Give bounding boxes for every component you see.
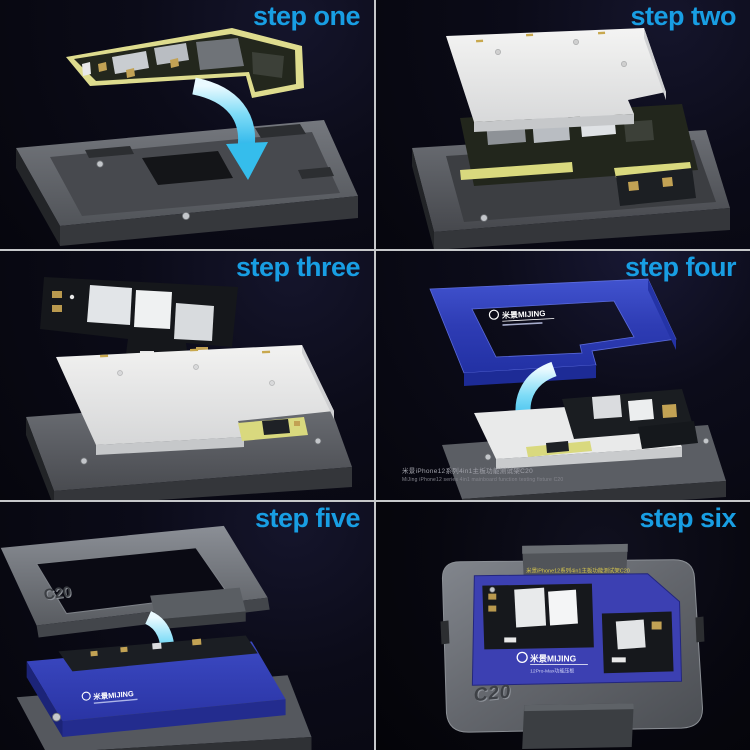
fixture-caption: 米景iPhone12系列4in1主板功能测试架C20 MiJing iPhone… <box>402 468 563 484</box>
step-label: step five <box>255 503 360 534</box>
body-marking: C20 <box>473 681 513 706</box>
screw-icon <box>703 438 709 444</box>
step-guide-grid: step one <box>0 0 750 750</box>
screw-icon <box>485 454 491 460</box>
screw-icon <box>53 713 61 721</box>
illustration-step-four: 米景MIJING <box>376 251 750 500</box>
illustration-step-three <box>0 251 374 500</box>
assembled-device: 米景iPhone12系列4in1主板功能测试架C20 <box>440 544 704 749</box>
step-label: step six <box>639 503 736 534</box>
panel-step-two: step two <box>376 0 750 249</box>
step-label: step three <box>236 252 360 283</box>
illustration-step-two <box>376 0 750 249</box>
side-latch <box>695 617 704 643</box>
step-label: step four <box>625 252 736 283</box>
metal-clamp-frame: C20 C20 <box>1 526 270 638</box>
illustration-step-five: C20 C20 米景MIJING <box>0 502 374 750</box>
frame-brand-text: 米景MIJING <box>501 308 546 320</box>
illustration-step-six: 米景iPhone12系列4in1主板功能测试架C20 <box>376 502 750 750</box>
panel-step-three: step three <box>0 251 374 500</box>
upper-logic-board <box>482 584 594 650</box>
plate-top-text: 米景iPhone12系列4in1主板功能测试架C20 <box>526 567 630 575</box>
caption-line-2: MiJing iPhone12 series 4in1 mainboard fu… <box>402 476 563 484</box>
plate-brand-subtext: 12Pro-Max功能压板 <box>530 667 574 674</box>
panel-step-one: step one <box>0 0 374 249</box>
screw-icon <box>182 212 189 219</box>
screw-icon <box>315 438 321 444</box>
illustration-step-one <box>0 0 374 249</box>
assembled-fixture: 米景MIJING <box>17 635 312 750</box>
panel-step-six: 米景iPhone12系列4in1主板功能测试架C20 <box>376 502 750 750</box>
fixture-base <box>16 120 358 246</box>
screw-icon <box>481 215 488 222</box>
side-latch <box>440 621 449 645</box>
caption-line-1: 米景iPhone12系列4in1主板功能测试架C20 <box>402 468 563 476</box>
screw-icon <box>81 458 87 464</box>
screw-icon <box>490 587 495 592</box>
brand-mark: 米景MIJING <box>489 307 554 326</box>
step-label: step one <box>253 1 360 32</box>
plate-brand-text: 米景MIJING <box>529 653 576 663</box>
screw-icon <box>97 161 103 167</box>
lower-logic-board <box>602 612 674 674</box>
step-label: step two <box>630 1 736 32</box>
mijing-logo-icon <box>489 310 498 319</box>
frame-marking: C20 <box>43 583 72 603</box>
panel-step-five: C20 C20 米景MIJING <box>0 502 374 750</box>
panel-step-four: 米景MIJING <box>376 251 750 500</box>
insulation-cover <box>446 28 666 132</box>
lower-logic-board <box>66 28 304 98</box>
